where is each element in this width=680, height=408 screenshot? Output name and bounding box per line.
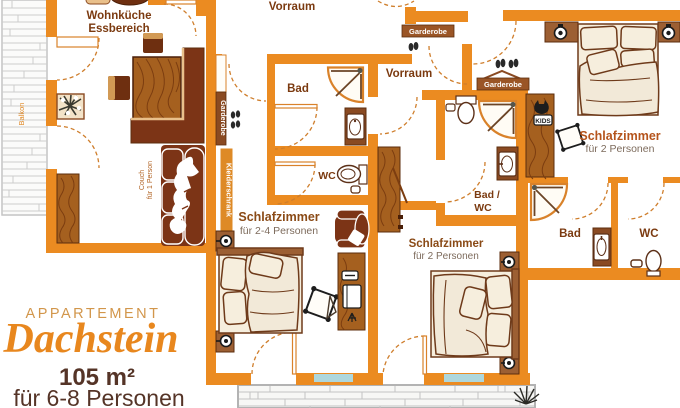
svg-text:für 6-8 Personen: für 6-8 Personen — [13, 385, 184, 408]
svg-text:für 2 Personen: für 2 Personen — [586, 143, 655, 155]
svg-text:Couch: Couch — [139, 170, 146, 190]
svg-text:Essbereich: Essbereich — [88, 23, 149, 35]
svg-text:Bad: Bad — [559, 228, 581, 240]
svg-text:KIDS: KIDS — [535, 118, 551, 125]
svg-text:Garderobe: Garderobe — [409, 27, 447, 36]
svg-text:für 1 Person: für 1 Person — [147, 161, 154, 199]
svg-text:WC: WC — [639, 228, 658, 240]
svg-text:Schlafzimmer: Schlafzimmer — [409, 238, 484, 250]
svg-text:Dachstein: Dachstein — [2, 316, 178, 362]
svg-text:WC: WC — [474, 202, 492, 214]
svg-text:Balkon: Balkon — [17, 103, 26, 126]
svg-text:für 2-4 Personen: für 2-4 Personen — [240, 225, 318, 237]
svg-text:Bad /: Bad / — [474, 189, 500, 201]
svg-text:Garderobe: Garderobe — [484, 80, 522, 89]
svg-text:Vorraum: Vorraum — [269, 1, 315, 13]
svg-text:für 2 Personen: für 2 Personen — [413, 251, 479, 262]
svg-text:WC: WC — [318, 170, 336, 182]
svg-text:Wohnküche: Wohnküche — [87, 10, 152, 22]
svg-text:Schlafzimmer: Schlafzimmer — [238, 210, 319, 224]
svg-text:Garderobe: Garderobe — [219, 100, 226, 136]
svg-text:Bad: Bad — [287, 83, 309, 95]
svg-text:Schlafzimmer: Schlafzimmer — [579, 129, 660, 143]
svg-text:Kleiderschrank: Kleiderschrank — [225, 163, 234, 218]
svg-text:Vorraum: Vorraum — [386, 68, 432, 80]
